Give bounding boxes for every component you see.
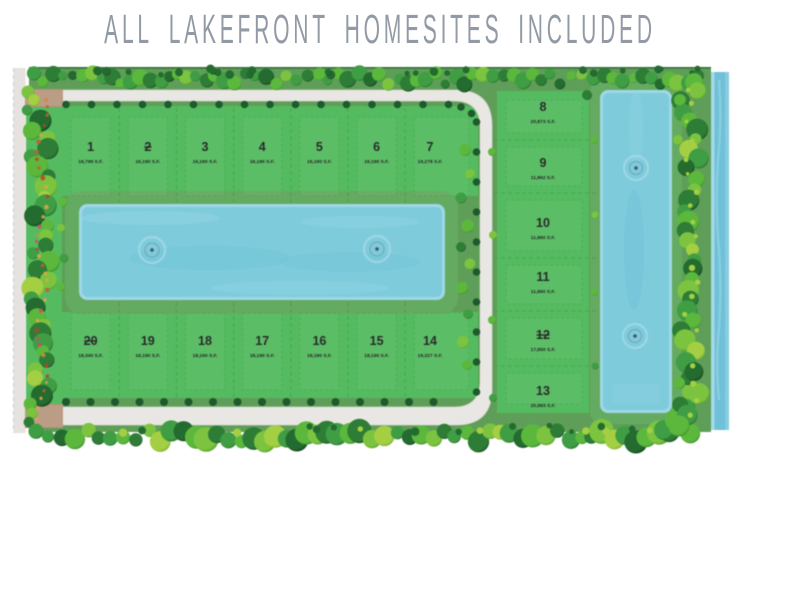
svg-text:18,340 S.F.: 18,340 S.F. bbox=[78, 353, 103, 359]
svg-text:13: 13 bbox=[536, 384, 550, 398]
svg-text:18,190 S.F.: 18,190 S.F. bbox=[135, 353, 160, 359]
svg-text:20,873 S.F.: 20,873 S.F. bbox=[531, 119, 556, 125]
svg-text:19,327 S.F.: 19,327 S.F. bbox=[418, 353, 443, 359]
svg-text:1: 1 bbox=[87, 140, 94, 154]
svg-text:2: 2 bbox=[144, 140, 151, 154]
svg-text:14: 14 bbox=[423, 334, 437, 348]
svg-text:16,190 S.F.: 16,190 S.F. bbox=[307, 159, 332, 165]
svg-text:18,190 S.F.: 18,190 S.F. bbox=[307, 353, 332, 359]
svg-text:20,983 S.F.: 20,983 S.F. bbox=[531, 403, 556, 409]
svg-text:11,862 S.F.: 11,862 S.F. bbox=[531, 175, 556, 181]
svg-text:16,190 S.F.: 16,190 S.F. bbox=[135, 159, 160, 165]
svg-text:7: 7 bbox=[427, 140, 434, 154]
svg-text:18,190 S.F.: 18,190 S.F. bbox=[250, 353, 275, 359]
svg-text:11: 11 bbox=[536, 270, 549, 284]
svg-text:18: 18 bbox=[198, 334, 212, 348]
svg-text:3: 3 bbox=[202, 140, 209, 154]
svg-text:16,190 S.F.: 16,190 S.F. bbox=[193, 159, 218, 165]
svg-text:9: 9 bbox=[540, 156, 547, 170]
svg-text:16,190 S.F.: 16,190 S.F. bbox=[364, 159, 389, 165]
svg-text:11,860 S.F.: 11,860 S.F. bbox=[531, 289, 556, 295]
svg-text:5: 5 bbox=[316, 140, 323, 154]
svg-text:18,190 S.F.: 18,190 S.F. bbox=[364, 353, 389, 359]
svg-text:6: 6 bbox=[373, 140, 380, 154]
svg-text:19: 19 bbox=[141, 334, 155, 348]
svg-text:15: 15 bbox=[370, 334, 384, 348]
svg-text:17: 17 bbox=[255, 334, 269, 348]
svg-text:16,190 S.F.: 16,190 S.F. bbox=[250, 159, 275, 165]
svg-text:12: 12 bbox=[536, 328, 550, 342]
svg-text:10: 10 bbox=[536, 216, 550, 230]
svg-text:8: 8 bbox=[540, 100, 547, 114]
svg-text:16,799 S.F.: 16,799 S.F. bbox=[78, 159, 103, 165]
svg-text:19,278 S.F.: 19,278 S.F. bbox=[418, 159, 443, 165]
svg-text:20: 20 bbox=[84, 334, 98, 348]
svg-text:11,860 S.F.: 11,860 S.F. bbox=[531, 235, 556, 241]
svg-text:16: 16 bbox=[312, 334, 326, 348]
svg-text:17,850 S.F.: 17,850 S.F. bbox=[531, 347, 556, 353]
svg-text:18,190 S.F.: 18,190 S.F. bbox=[193, 353, 218, 359]
svg-text:4: 4 bbox=[259, 140, 266, 154]
